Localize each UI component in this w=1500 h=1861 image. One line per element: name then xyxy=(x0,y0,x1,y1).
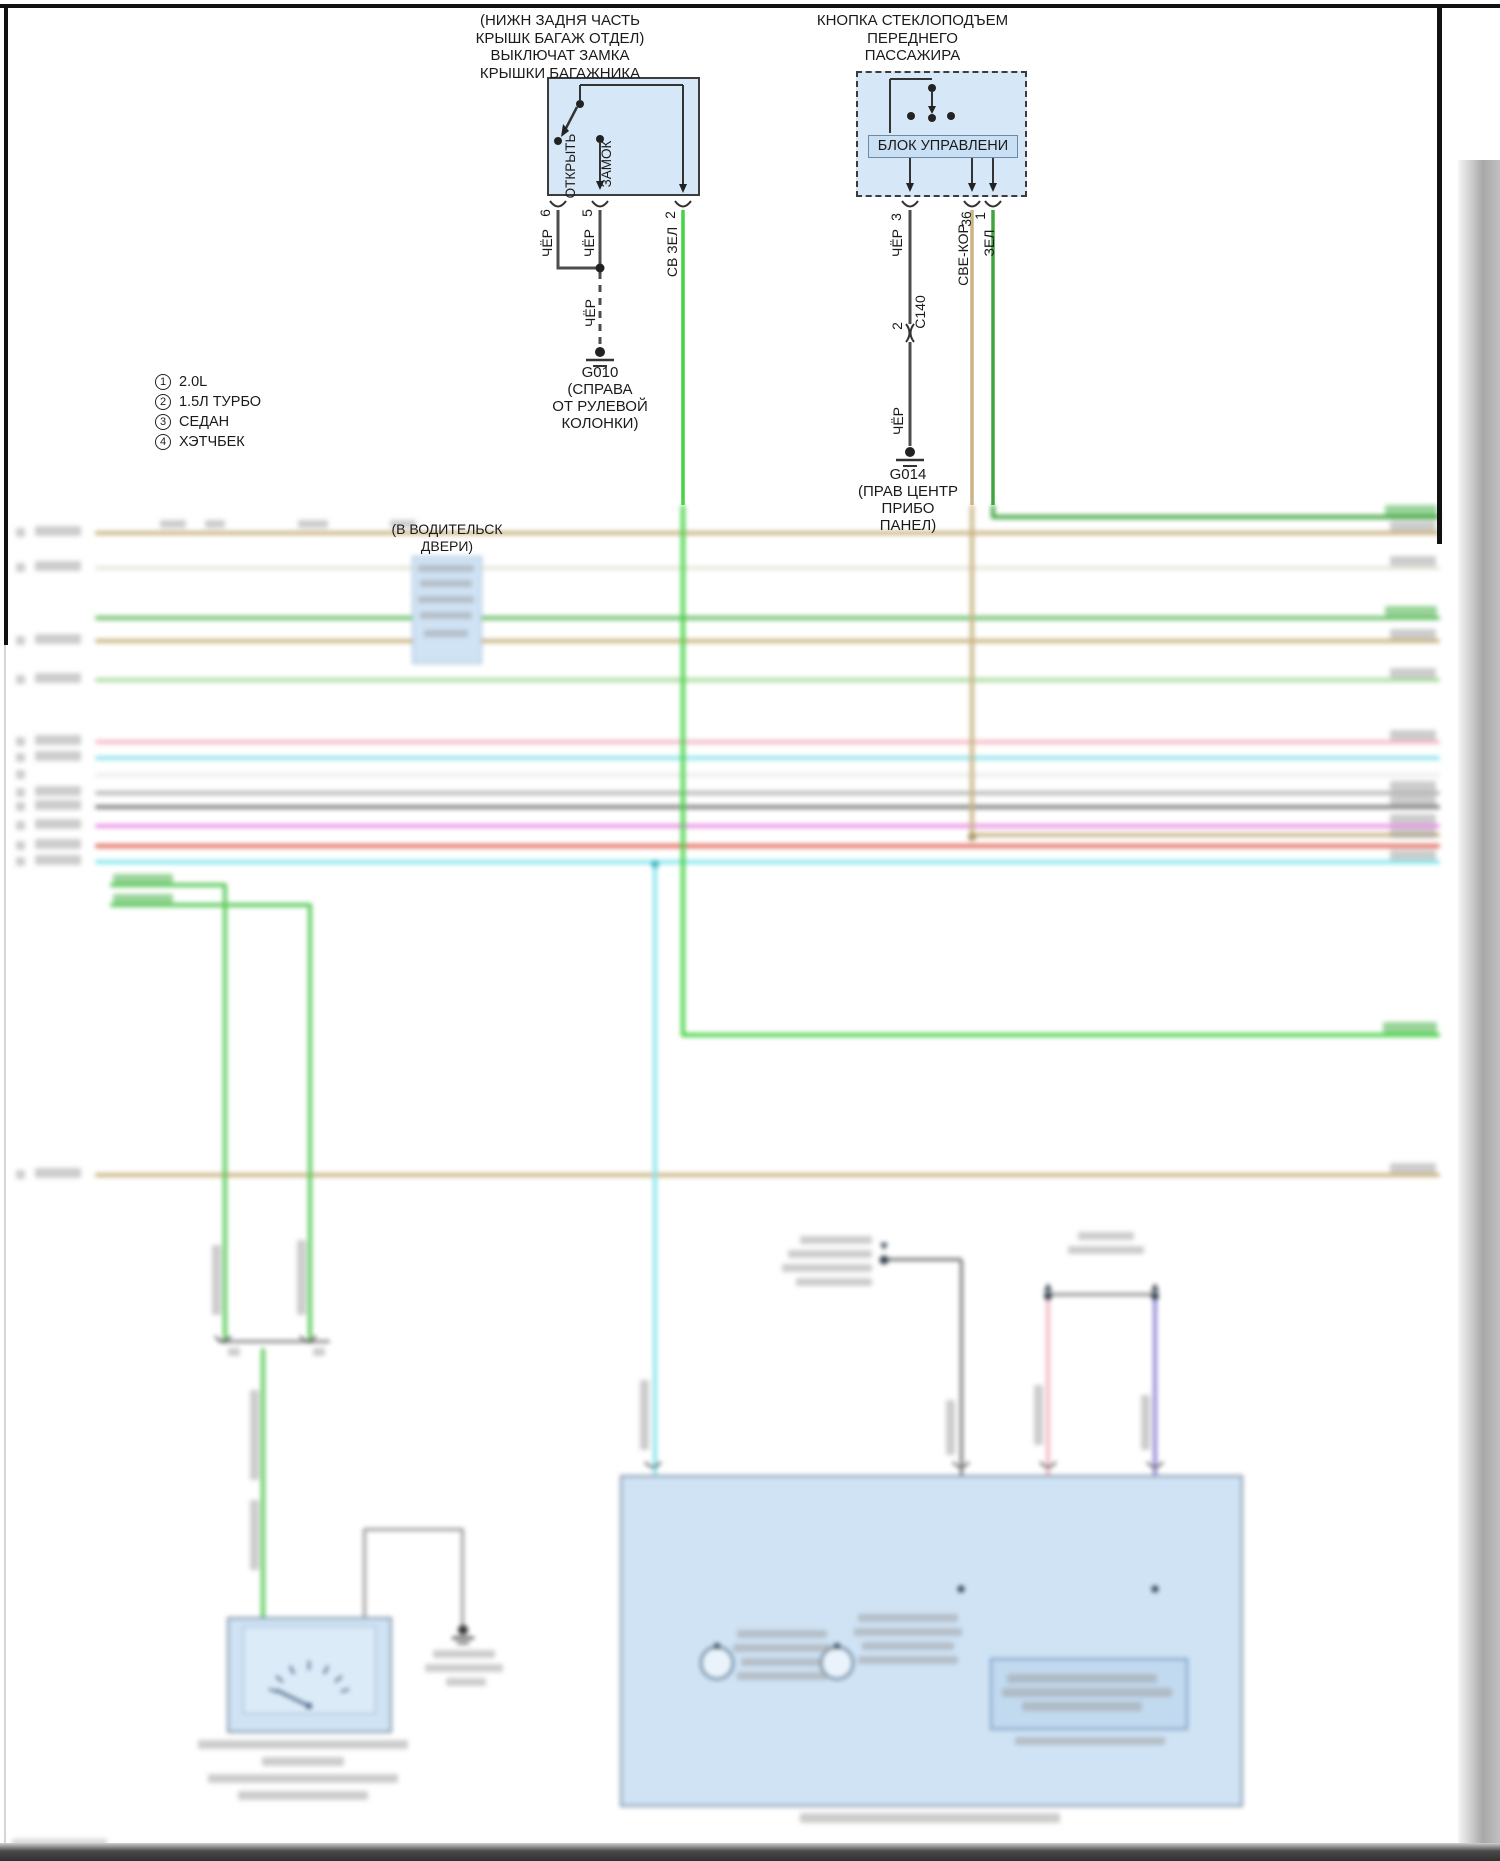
legend-item: 2 1.5Л ТУРБО xyxy=(155,392,261,411)
title-line: ПАССАЖИРА xyxy=(805,47,1020,65)
legend-label: ХЭТЧБЕК xyxy=(179,434,245,450)
legend-number-circle: 4 xyxy=(155,434,171,450)
title-line: ВЫКЛЮЧАТ ЗАМКА xyxy=(450,47,670,65)
ground-location-line: ПРИБО xyxy=(838,500,978,517)
legend-label: СЕДАН xyxy=(179,414,229,430)
title-line: ПЕРЕДНЕГО xyxy=(805,30,1020,48)
driver-door-note: (В ВОДИТЕЛЬСК ДВЕРИ) xyxy=(374,521,520,555)
ground-location-line: (ПРАВ ЦЕНТР xyxy=(838,483,978,500)
legend-item: 3 СЕДАН xyxy=(155,412,261,431)
wire-color-label: ЧЁР xyxy=(582,278,598,348)
title-line: КРЫШКИ БАГАЖНИКА xyxy=(450,65,670,83)
legend-item: 1 2.0L xyxy=(155,372,261,391)
legend-label: 1.5Л ТУРБО xyxy=(179,394,261,410)
contact-label-open: ОТКРЫТЬ xyxy=(563,131,579,201)
legend-label: 2.0L xyxy=(179,374,207,390)
title-line: КНОПКА СТЕКЛОПОДЪЕМ xyxy=(805,12,1020,30)
legend-number-circle: 1 xyxy=(155,374,171,390)
window-switch-title: КНОПКА СТЕКЛОПОДЪЕМ ПЕРЕДНЕГО ПАССАЖИРА xyxy=(805,12,1020,65)
wiring-lines-layer xyxy=(0,0,1500,1861)
wire-color-label: ЗЕЛ xyxy=(981,208,997,278)
legend-number-circle: 2 xyxy=(155,394,171,410)
trunk-switch-title: (НИЖН ЗАДНЯ ЧАСТЬ КРЫШК БАГАЖ ОТДЕЛ) ВЫК… xyxy=(450,12,670,82)
variant-legend: 1 2.0L 2 1.5Л ТУРБО 3 СЕДАН 4 ХЭТЧБЕК xyxy=(155,372,261,451)
ground-location-line: ПАНЕЛ) xyxy=(838,517,978,534)
ground-id: G010 xyxy=(540,364,660,381)
note-line: ДВЕРИ) xyxy=(374,538,520,555)
note-line: (В ВОДИТЕЛЬСК xyxy=(374,521,520,538)
wire-color-label: ЧЁР xyxy=(539,208,555,278)
legend-item: 4 ХЭТЧБЕК xyxy=(155,432,261,451)
connector-id-label: C140 xyxy=(912,277,928,347)
wire-color-label: ЧЁР xyxy=(890,386,906,456)
wire-color-label: ЧЁР xyxy=(581,208,597,278)
ground-location-line: КОЛОНКИ) xyxy=(540,415,660,432)
connector-pin-number: 2 xyxy=(889,291,905,361)
control-block-label: БЛОК УПРАВЛЕНИ xyxy=(868,135,1018,158)
title-line: КРЫШК БАГАЖ ОТДЕЛ) xyxy=(450,30,670,48)
wire-color-label: СВЕ-КОР xyxy=(955,220,971,290)
legend-number-circle: 3 xyxy=(155,414,171,430)
ground-id: G014 xyxy=(838,466,978,483)
ground-location-line: ОТ РУЛЕВОЙ xyxy=(540,398,660,415)
title-line: (НИЖН ЗАДНЯ ЧАСТЬ xyxy=(450,12,670,30)
wire-color-label: ЧЁР xyxy=(889,208,905,278)
contact-label-lock: ЗАМОК xyxy=(599,129,615,199)
wire-color-label: СВ ЗЕЛ xyxy=(664,217,680,287)
ground-location-line: (СПРАВА xyxy=(540,381,660,398)
ground-g010-label: G010 (СПРАВА ОТ РУЛЕВОЙ КОЛОНКИ) xyxy=(540,364,660,432)
ground-g014-label: G014 (ПРАВ ЦЕНТР ПРИБО ПАНЕЛ) xyxy=(838,466,978,534)
wiring-diagram-page: (НИЖН ЗАДНЯ ЧАСТЬ КРЫШК БАГАЖ ОТДЕЛ) ВЫК… xyxy=(0,0,1500,1861)
